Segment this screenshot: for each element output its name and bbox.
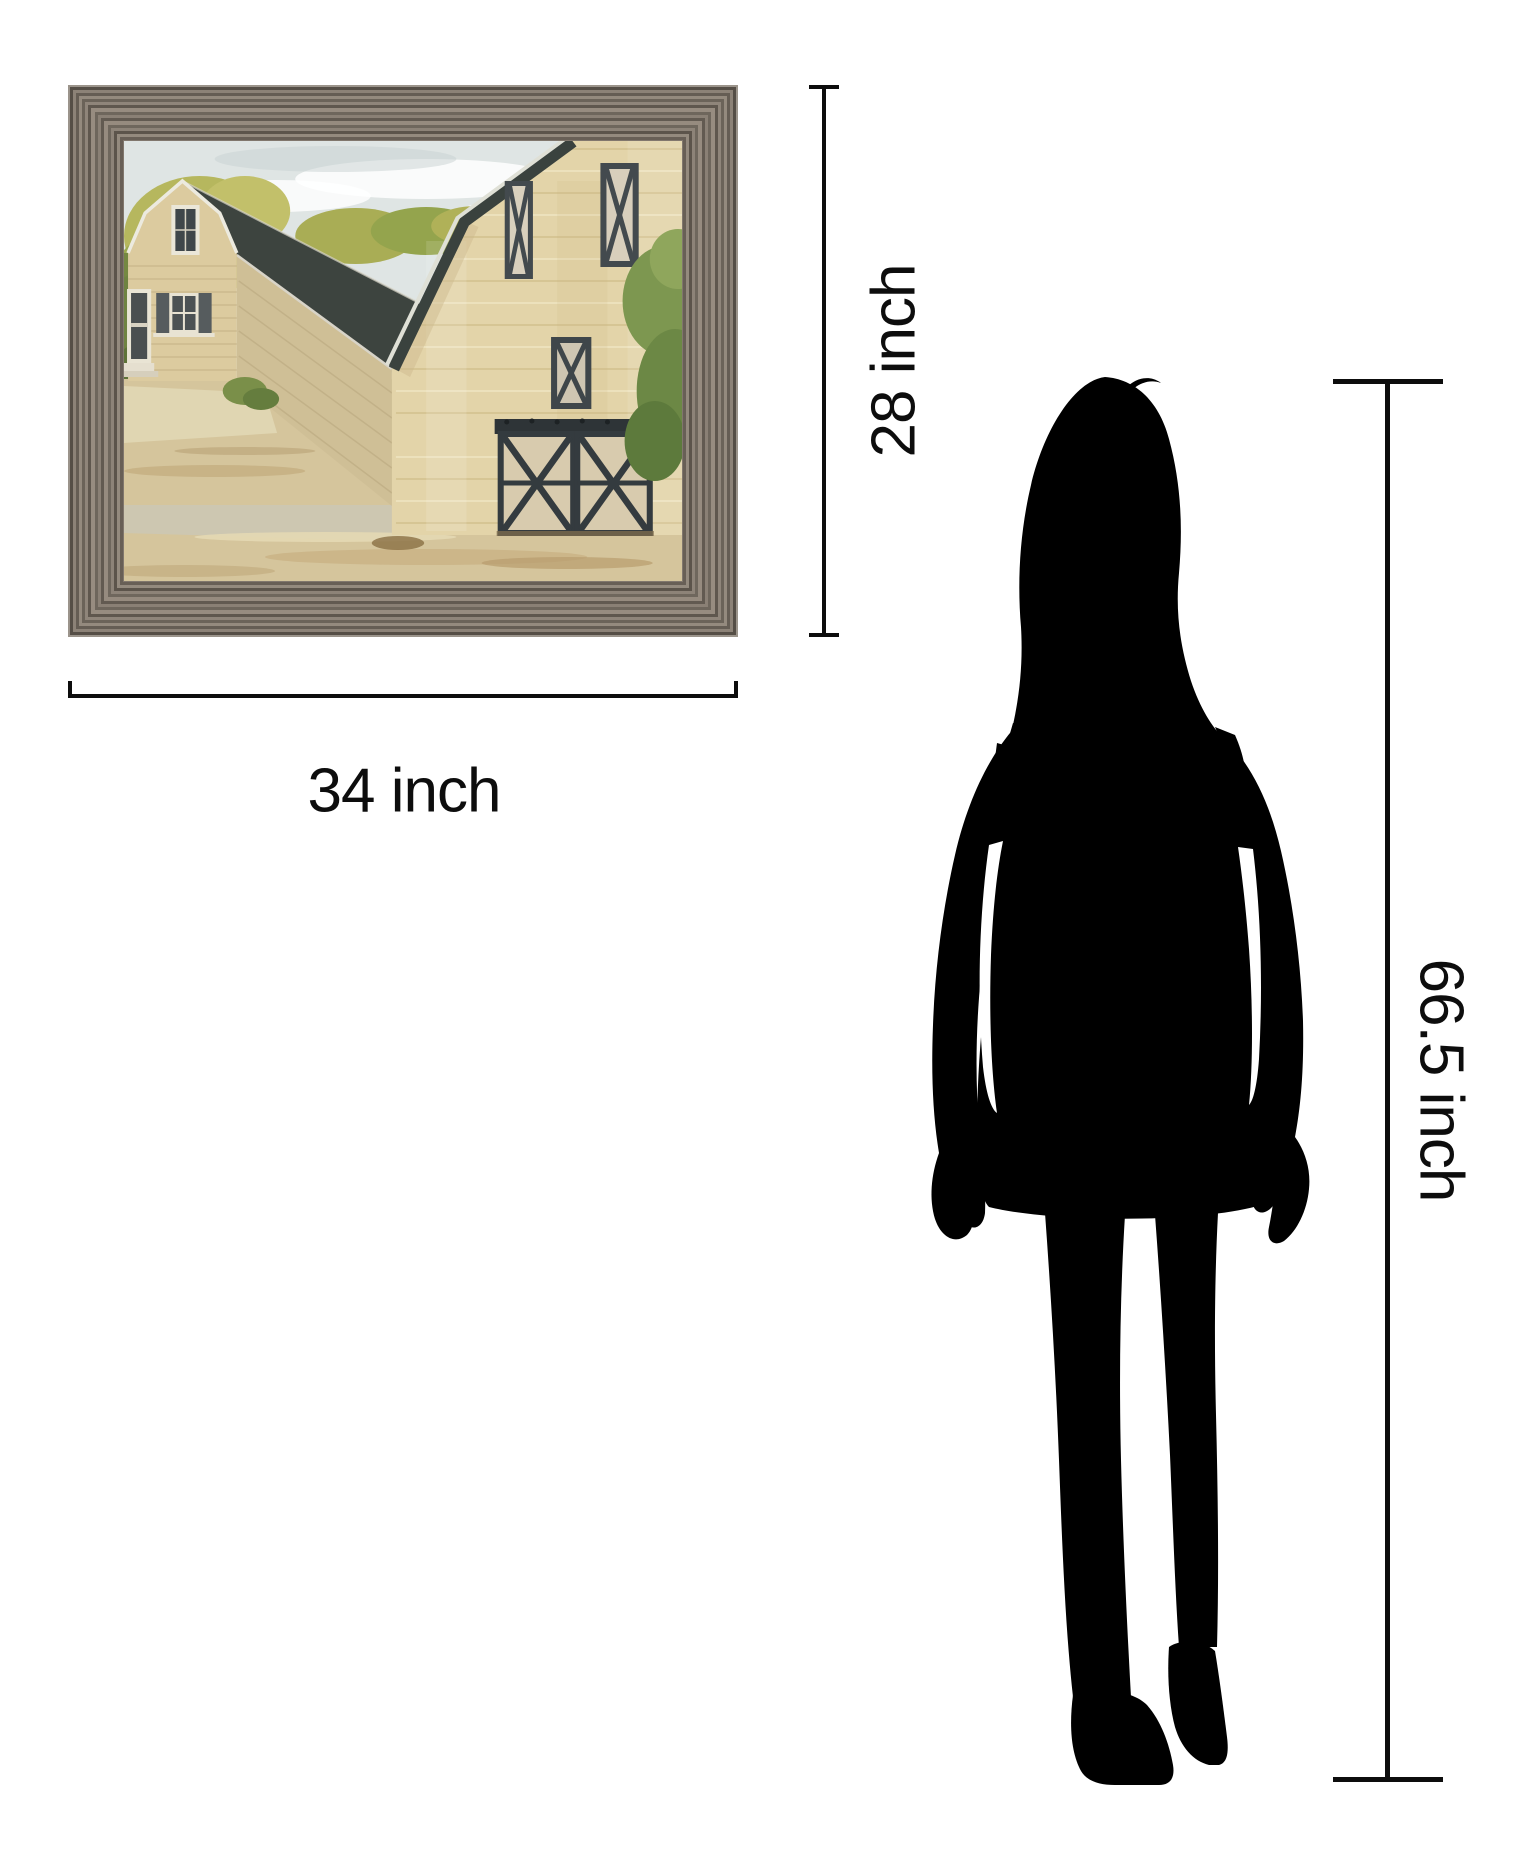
farm-painting <box>124 141 682 581</box>
person-silhouette <box>923 375 1330 1785</box>
barn-door-left <box>501 434 574 533</box>
barn-window-middle <box>551 337 591 409</box>
person-height-label: 66.5 inch <box>1406 959 1477 1202</box>
height-dimension-cap-bottom <box>809 633 839 637</box>
woman-silhouette-graphic <box>923 375 1330 1785</box>
person-height-line <box>1385 379 1390 1782</box>
person-height-cap-bottom <box>1333 1777 1443 1782</box>
width-dimension-label: 34 inch <box>308 756 501 827</box>
artwork-print <box>124 141 682 581</box>
barn-vent-upper-left <box>505 181 533 279</box>
width-dimension-tick-left <box>68 681 72 698</box>
house-attic-window <box>171 205 199 255</box>
width-dimension-line <box>68 694 738 698</box>
height-dimension-line <box>822 85 826 637</box>
person-height-cap-top <box>1333 379 1443 384</box>
framed-artwork <box>68 85 738 637</box>
height-dimension-label: 28 inch <box>859 265 930 458</box>
width-dimension-tick-right <box>734 681 738 698</box>
house-window <box>153 293 214 337</box>
height-dimension-cap-top <box>809 85 839 89</box>
barn-vent-upper-right <box>600 163 638 267</box>
